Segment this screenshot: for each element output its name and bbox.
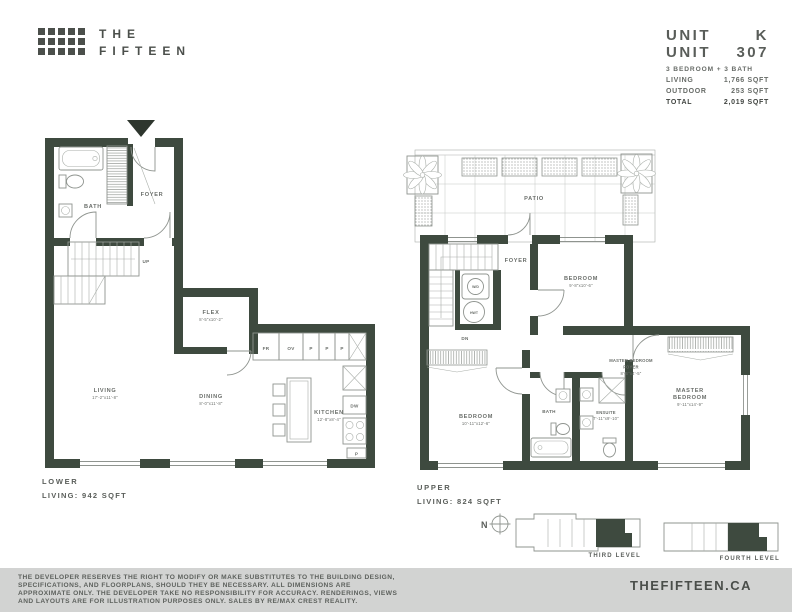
stat-outdoor: OUTDOOR 253 SQFT	[666, 88, 769, 95]
plant-icon-left	[404, 156, 442, 194]
planter-box-4	[582, 158, 617, 176]
patio-door	[508, 213, 530, 235]
disclaimer-line-1: THE DEVELOPER RESERVES THE RIGHT TO MODI…	[18, 574, 397, 582]
room-label-patio: PATIO	[524, 196, 544, 202]
unit-highlight-fourth	[728, 523, 767, 551]
bath-door	[70, 212, 96, 238]
bath-sink-icon	[556, 389, 570, 402]
unit-highlight-third	[596, 519, 632, 547]
compass-icon: N	[481, 514, 511, 535]
room-dims-living: 17'-2"x11'-8"	[92, 395, 118, 400]
unit-info-panel: UNIT K UNIT 307 3 BEDROOM + 3 BATH LIVIN…	[666, 27, 769, 106]
brand-line1: THE	[99, 26, 191, 43]
footer-bar: THE DEVELOPER RESERVES THE RIGHT TO MODI…	[0, 568, 792, 612]
third-level-label: THIRD LEVEL	[588, 553, 641, 559]
flex-door	[227, 351, 251, 375]
stairs-up	[54, 242, 139, 304]
third-level-keyplan	[516, 514, 640, 551]
unit-letter-row: UNIT K	[666, 27, 769, 44]
bath-tub-icon	[531, 438, 571, 457]
marker-wd: W/D	[472, 285, 479, 289]
planter-left	[415, 196, 432, 226]
stat-outdoor-label: OUTDOOR	[666, 88, 707, 95]
disclaimer-line-4: AND LAYOUTS ARE FOR ILLUSTRATION PURPOSE…	[18, 598, 397, 606]
room-label-master-2: BEDROOM	[673, 395, 707, 401]
ensuite-sink-icons	[580, 388, 593, 429]
room-label-flex: FLEX	[202, 310, 219, 316]
marker-pantry-4: P	[355, 452, 358, 457]
kitchen-sink-icon	[343, 366, 366, 390]
sink-icon	[59, 204, 72, 217]
hall-door	[144, 212, 170, 238]
room-dims-ensuite: 7'-11"x9'-10"	[593, 416, 619, 421]
lower-subtitle: LIVING: 942 SQFT	[42, 491, 127, 500]
floorplan-sheet: THE FIFTEEN UNIT K UNIT 307 3 BEDROOM + …	[0, 0, 792, 612]
stat-living: LIVING 1,766 SQFT	[666, 77, 769, 84]
planter-box-2	[502, 158, 537, 176]
bedroom3-closet-icon	[427, 350, 487, 372]
disclaimer-line-3: APPROXIMATE ONLY. THE DEVELOPER TAKE NO …	[18, 590, 397, 598]
room-label-master-foyer-2: FOYER	[623, 365, 638, 370]
lower-floorplan: BATH FOYER UP FLEX 8'-5"x10'-2" LIVING 1…	[35, 118, 395, 470]
room-label-bedroom2: BEDROOM	[564, 276, 598, 282]
stat-total: TOTAL 2,019 SQFT	[666, 99, 769, 106]
lower-windows	[80, 462, 327, 466]
entry-door	[131, 147, 155, 171]
upper-title: UPPER	[417, 483, 502, 492]
room-label-master-foyer-1: MASTER BEDROOM	[609, 358, 653, 363]
ensuite-toilet-icon	[603, 438, 616, 457]
lower-plan-title: LOWER LIVING: 942 SQFT	[42, 477, 127, 500]
key-plans: N THIRD LEVEL FOURTH LEVEL	[478, 507, 790, 563]
bathtub-icon	[59, 147, 103, 170]
fourth-level-keyplan	[664, 523, 778, 551]
room-label-bath: BATH	[84, 204, 102, 210]
marker-dishwasher: DW	[350, 404, 359, 409]
toilet-icon	[59, 175, 84, 188]
marker-dn: DN	[461, 336, 469, 341]
upper-subtitle: LIVING: 824 SQFT	[417, 497, 502, 506]
planter-box-3	[542, 158, 577, 176]
room-label-kitchen: KITCHEN	[314, 410, 344, 416]
marker-pantry-3: P	[340, 346, 343, 351]
bath-toilet-icon	[551, 423, 570, 435]
brand-name: THE FIFTEEN	[99, 26, 191, 60]
brand-logo-grid-icon	[38, 28, 85, 55]
upper-floorplan: W/D HWT	[403, 140, 783, 486]
planter-right	[623, 195, 638, 225]
compass-north-label: N	[481, 520, 488, 530]
lower-title: LOWER	[42, 477, 127, 486]
unit-config: 3 BEDROOM + 3 BATH	[666, 66, 769, 73]
room-dims-kitchen: 12'-8"x8'-4"	[317, 417, 341, 422]
room-dims-master: 9'-11"x14'-9"	[677, 402, 703, 407]
disclaimer-line-2: SPECIFICATIONS, AND FLOORPLANS, SHOULD T…	[18, 582, 397, 590]
plant-icon-right	[618, 155, 656, 193]
stat-total-label: TOTAL	[666, 99, 692, 106]
stove-icon	[343, 418, 366, 444]
room-label-ensuite: ENSUITE	[596, 410, 616, 415]
entry-arrow-icon	[127, 120, 155, 137]
kitchen-island	[273, 378, 311, 442]
room-label-bath-upper: BATH	[542, 409, 556, 414]
room-label-foyer: FOYER	[141, 192, 164, 198]
room-label-master-1: MASTER	[676, 388, 704, 394]
unit-label-2: UNIT	[666, 44, 711, 61]
room-dims-bedroom2: 9'-8"x10'-6"	[569, 283, 593, 288]
ensuite-shower-icon	[599, 378, 625, 403]
fourth-level-label: FOURTH LEVEL	[720, 556, 780, 562]
room-dims-dining: 8'-0"x11'-8"	[199, 401, 223, 406]
room-dims-flex: 8'-5"x10'-2"	[199, 317, 223, 322]
disclaimer: THE DEVELOPER RESERVES THE RIGHT TO MODI…	[18, 574, 397, 606]
room-label-bedroom3: BEDROOM	[459, 414, 493, 420]
marker-hwt: HWT	[470, 311, 479, 315]
stat-outdoor-value: 253 SQFT	[731, 88, 769, 95]
closet-icon	[107, 146, 127, 204]
unit-letter: K	[756, 27, 769, 44]
room-label-living: LIVING	[94, 388, 117, 394]
master-closet-icon	[668, 337, 733, 360]
stat-living-value: 1,766 SQFT	[724, 77, 769, 84]
brand-line2: FIFTEEN	[99, 43, 191, 60]
bedroom3-door	[496, 368, 522, 394]
marker-oven: OV	[287, 346, 295, 351]
unit-label: UNIT	[666, 27, 711, 44]
upper-plan-title: UPPER LIVING: 824 SQFT	[417, 483, 502, 506]
room-label-dining: DINING	[199, 394, 223, 400]
marker-pantry-2: P	[325, 346, 328, 351]
room-dims-bedroom3: 10'-11"x12'-6"	[462, 421, 491, 426]
unit-number: 307	[736, 44, 769, 61]
room-dims-master-foyer: 8'-6"x4'-5"	[621, 371, 642, 376]
room-label-foyer-upper: FOYER	[505, 258, 528, 264]
marker-pantry-1: P	[309, 346, 312, 351]
marker-up: UP	[143, 259, 150, 264]
stat-total-value: 2,019 SQFT	[724, 99, 769, 106]
stat-living-label: LIVING	[666, 77, 694, 84]
marker-fridge: FR	[263, 346, 270, 351]
website-link[interactable]: THEFIFTEEN.CA	[630, 578, 752, 593]
bedroom2-door	[538, 290, 564, 316]
unit-number-row: UNIT 307	[666, 44, 769, 61]
planter-box-1	[462, 158, 497, 176]
